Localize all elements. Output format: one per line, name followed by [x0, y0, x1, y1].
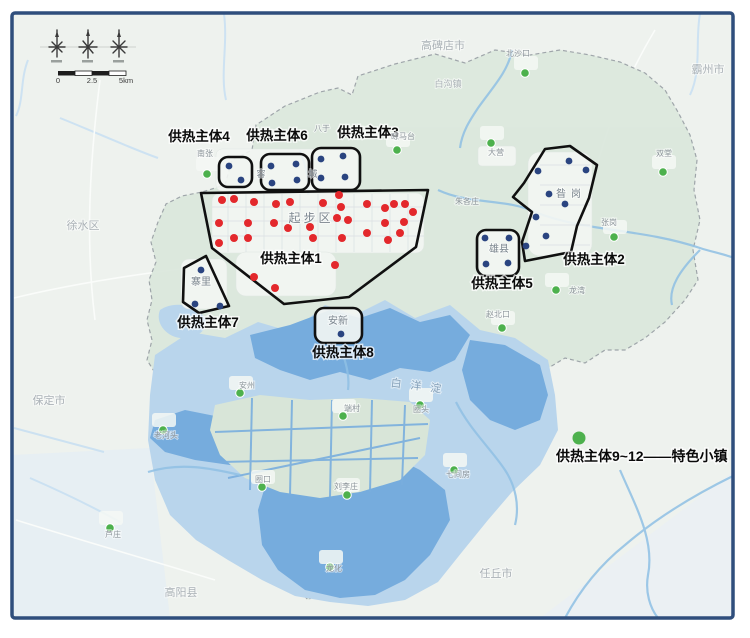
green-town-dot	[203, 170, 212, 179]
red-heat-source-dot	[333, 214, 341, 222]
place-label: 徐水区	[67, 218, 100, 232]
place-label: 昝岗	[556, 187, 586, 200]
village-patch	[152, 413, 176, 427]
village-patch	[196, 157, 220, 171]
red-heat-source-dot	[309, 234, 317, 242]
red-heat-source-dot	[331, 261, 339, 269]
southwest-tint	[12, 448, 170, 618]
red-heat-source-dot	[344, 216, 352, 224]
red-heat-source-dot	[244, 234, 252, 242]
red-heat-source-dot	[381, 219, 389, 227]
red-heat-source-dot	[286, 198, 294, 206]
green-town-dot	[552, 286, 561, 295]
scale-tick-label: 5km	[119, 76, 133, 85]
red-heat-source-dot	[284, 224, 292, 232]
blue-heat-source-dot	[483, 261, 490, 268]
blue-heat-source-dot	[506, 235, 513, 242]
blue-heat-source-dot	[482, 235, 489, 242]
heat-entity-1-label: 供热主体1	[259, 250, 322, 266]
green-town-dot	[610, 233, 619, 242]
heat-entity-6-label: 供热主体6	[245, 127, 308, 143]
place-label: 龙湾	[569, 285, 585, 295]
place-label: 任丘市	[480, 566, 513, 580]
green-town-dot	[521, 69, 530, 78]
place-label: 容	[256, 168, 265, 179]
red-heat-source-dot	[390, 200, 398, 208]
red-heat-source-dot	[215, 219, 223, 227]
red-heat-source-dot	[396, 229, 404, 237]
red-heat-source-dot	[338, 234, 346, 242]
heat-entity-8-label: 供热主体8	[311, 344, 374, 360]
place-label: 圈口	[255, 475, 271, 484]
village-patch	[443, 453, 467, 467]
blue-heat-source-dot	[238, 177, 245, 184]
blue-heat-source-dot	[523, 243, 530, 250]
blue-heat-source-dot	[198, 267, 205, 274]
place-label: 龙化	[326, 563, 342, 573]
heat-entity-5-label: 供热主体5	[470, 275, 533, 291]
red-heat-source-dot	[384, 236, 392, 244]
village-patch	[480, 126, 504, 140]
place-label: 七间房	[446, 469, 470, 479]
place-label: 端村	[344, 403, 360, 413]
red-heat-source-dot	[335, 191, 343, 199]
red-heat-source-dot	[270, 219, 278, 227]
red-heat-source-dot	[363, 200, 371, 208]
blue-heat-source-dot	[535, 168, 542, 175]
place-label: 高碑店市	[421, 38, 465, 52]
place-label: 安州	[239, 380, 255, 390]
legend-label: 供热主体9~12——特色小镇	[555, 448, 728, 464]
heat-entity-3-label: 供热主体3	[336, 124, 399, 140]
place-label: 雄县	[489, 242, 509, 255]
village-patch	[99, 511, 123, 525]
blue-heat-source-dot	[583, 167, 590, 174]
place-label: 刘李庄	[334, 481, 358, 491]
place-label: 南张	[197, 148, 213, 158]
place-label: 高阳县	[165, 585, 198, 599]
heat-entity-2-label: 供热主体2	[562, 251, 625, 267]
red-heat-source-dot	[230, 234, 238, 242]
heating-map: 供热主体1供热主体2供热主体3供热主体4供热主体5供热主体6供热主体7供热主体8…	[0, 0, 750, 638]
place-label: 保定市	[33, 393, 66, 407]
red-heat-source-dot	[218, 196, 226, 204]
place-label: 白沟镇	[434, 78, 461, 89]
village-patch	[319, 550, 343, 564]
blue-heat-source-dot	[340, 153, 347, 160]
blue-heat-source-dot	[318, 156, 325, 163]
blue-heat-source-dot	[562, 201, 569, 208]
blue-heat-source-dot	[546, 191, 553, 198]
place-label: 芦庄	[105, 529, 121, 539]
blue-heat-source-dot	[294, 177, 301, 184]
place-label: 朱各庄	[455, 196, 479, 206]
village-patch	[514, 56, 538, 70]
place-label: 城	[308, 169, 317, 179]
blue-heat-source-dot	[338, 331, 345, 338]
blue-heat-source-dot	[192, 301, 199, 308]
scale-tick-label: 2.5	[87, 76, 97, 85]
red-heat-source-dot	[409, 208, 417, 216]
scale-tick-label: 0	[56, 76, 60, 85]
place-label: 八于	[314, 124, 330, 133]
red-heat-source-dot	[400, 218, 408, 226]
blue-heat-source-dot	[318, 175, 325, 182]
green-town-dot	[498, 324, 507, 333]
green-town-dot	[343, 491, 352, 500]
place-label: 双堂	[656, 148, 672, 158]
blue-heat-source-dot	[533, 214, 540, 221]
blue-heat-source-dot	[342, 174, 349, 181]
place-label: 霸州市	[692, 62, 725, 76]
blue-heat-source-dot	[269, 180, 276, 187]
legend-green-dot	[573, 432, 586, 445]
blue-heat-source-dot	[566, 158, 573, 165]
red-heat-source-dot	[319, 199, 327, 207]
place-label: 北沙口	[506, 49, 530, 58]
place-label: 寨里	[191, 275, 211, 288]
red-heat-source-dot	[215, 239, 223, 247]
blue-heat-source-dot	[293, 161, 300, 168]
red-heat-source-dot	[271, 284, 279, 292]
blue-heat-source-dot	[543, 233, 550, 240]
red-heat-source-dot	[250, 273, 258, 281]
village-patch	[545, 273, 569, 287]
place-label: 老河头	[154, 430, 178, 440]
red-heat-source-dot	[363, 229, 371, 237]
red-heat-source-dot	[381, 204, 389, 212]
place-label: 安新	[328, 314, 348, 327]
place-label: 赵北口	[486, 309, 510, 319]
place-label: 张岗	[601, 218, 617, 227]
red-heat-source-dot	[401, 200, 409, 208]
blue-heat-source-dot	[226, 163, 233, 170]
place-label: 圈头	[413, 404, 429, 414]
heat-entity-4-label: 供热主体4	[167, 128, 230, 144]
blue-heat-source-dot	[268, 163, 275, 170]
red-heat-source-dot	[244, 219, 252, 227]
green-town-dot	[659, 168, 668, 177]
blue-heat-source-dot	[217, 303, 224, 310]
green-town-dot	[393, 146, 402, 155]
red-heat-source-dot	[250, 198, 258, 206]
red-heat-source-dot	[337, 203, 345, 211]
heat-entity-7-label: 供热主体7	[176, 314, 239, 330]
place-label: 晾马台	[391, 131, 415, 141]
place-label: 大营	[488, 147, 504, 157]
red-heat-source-dot	[230, 195, 238, 203]
green-town-dot	[487, 139, 496, 148]
red-heat-source-dot	[272, 200, 280, 208]
blue-heat-source-dot	[505, 260, 512, 267]
place-label: 起步区	[288, 211, 333, 225]
